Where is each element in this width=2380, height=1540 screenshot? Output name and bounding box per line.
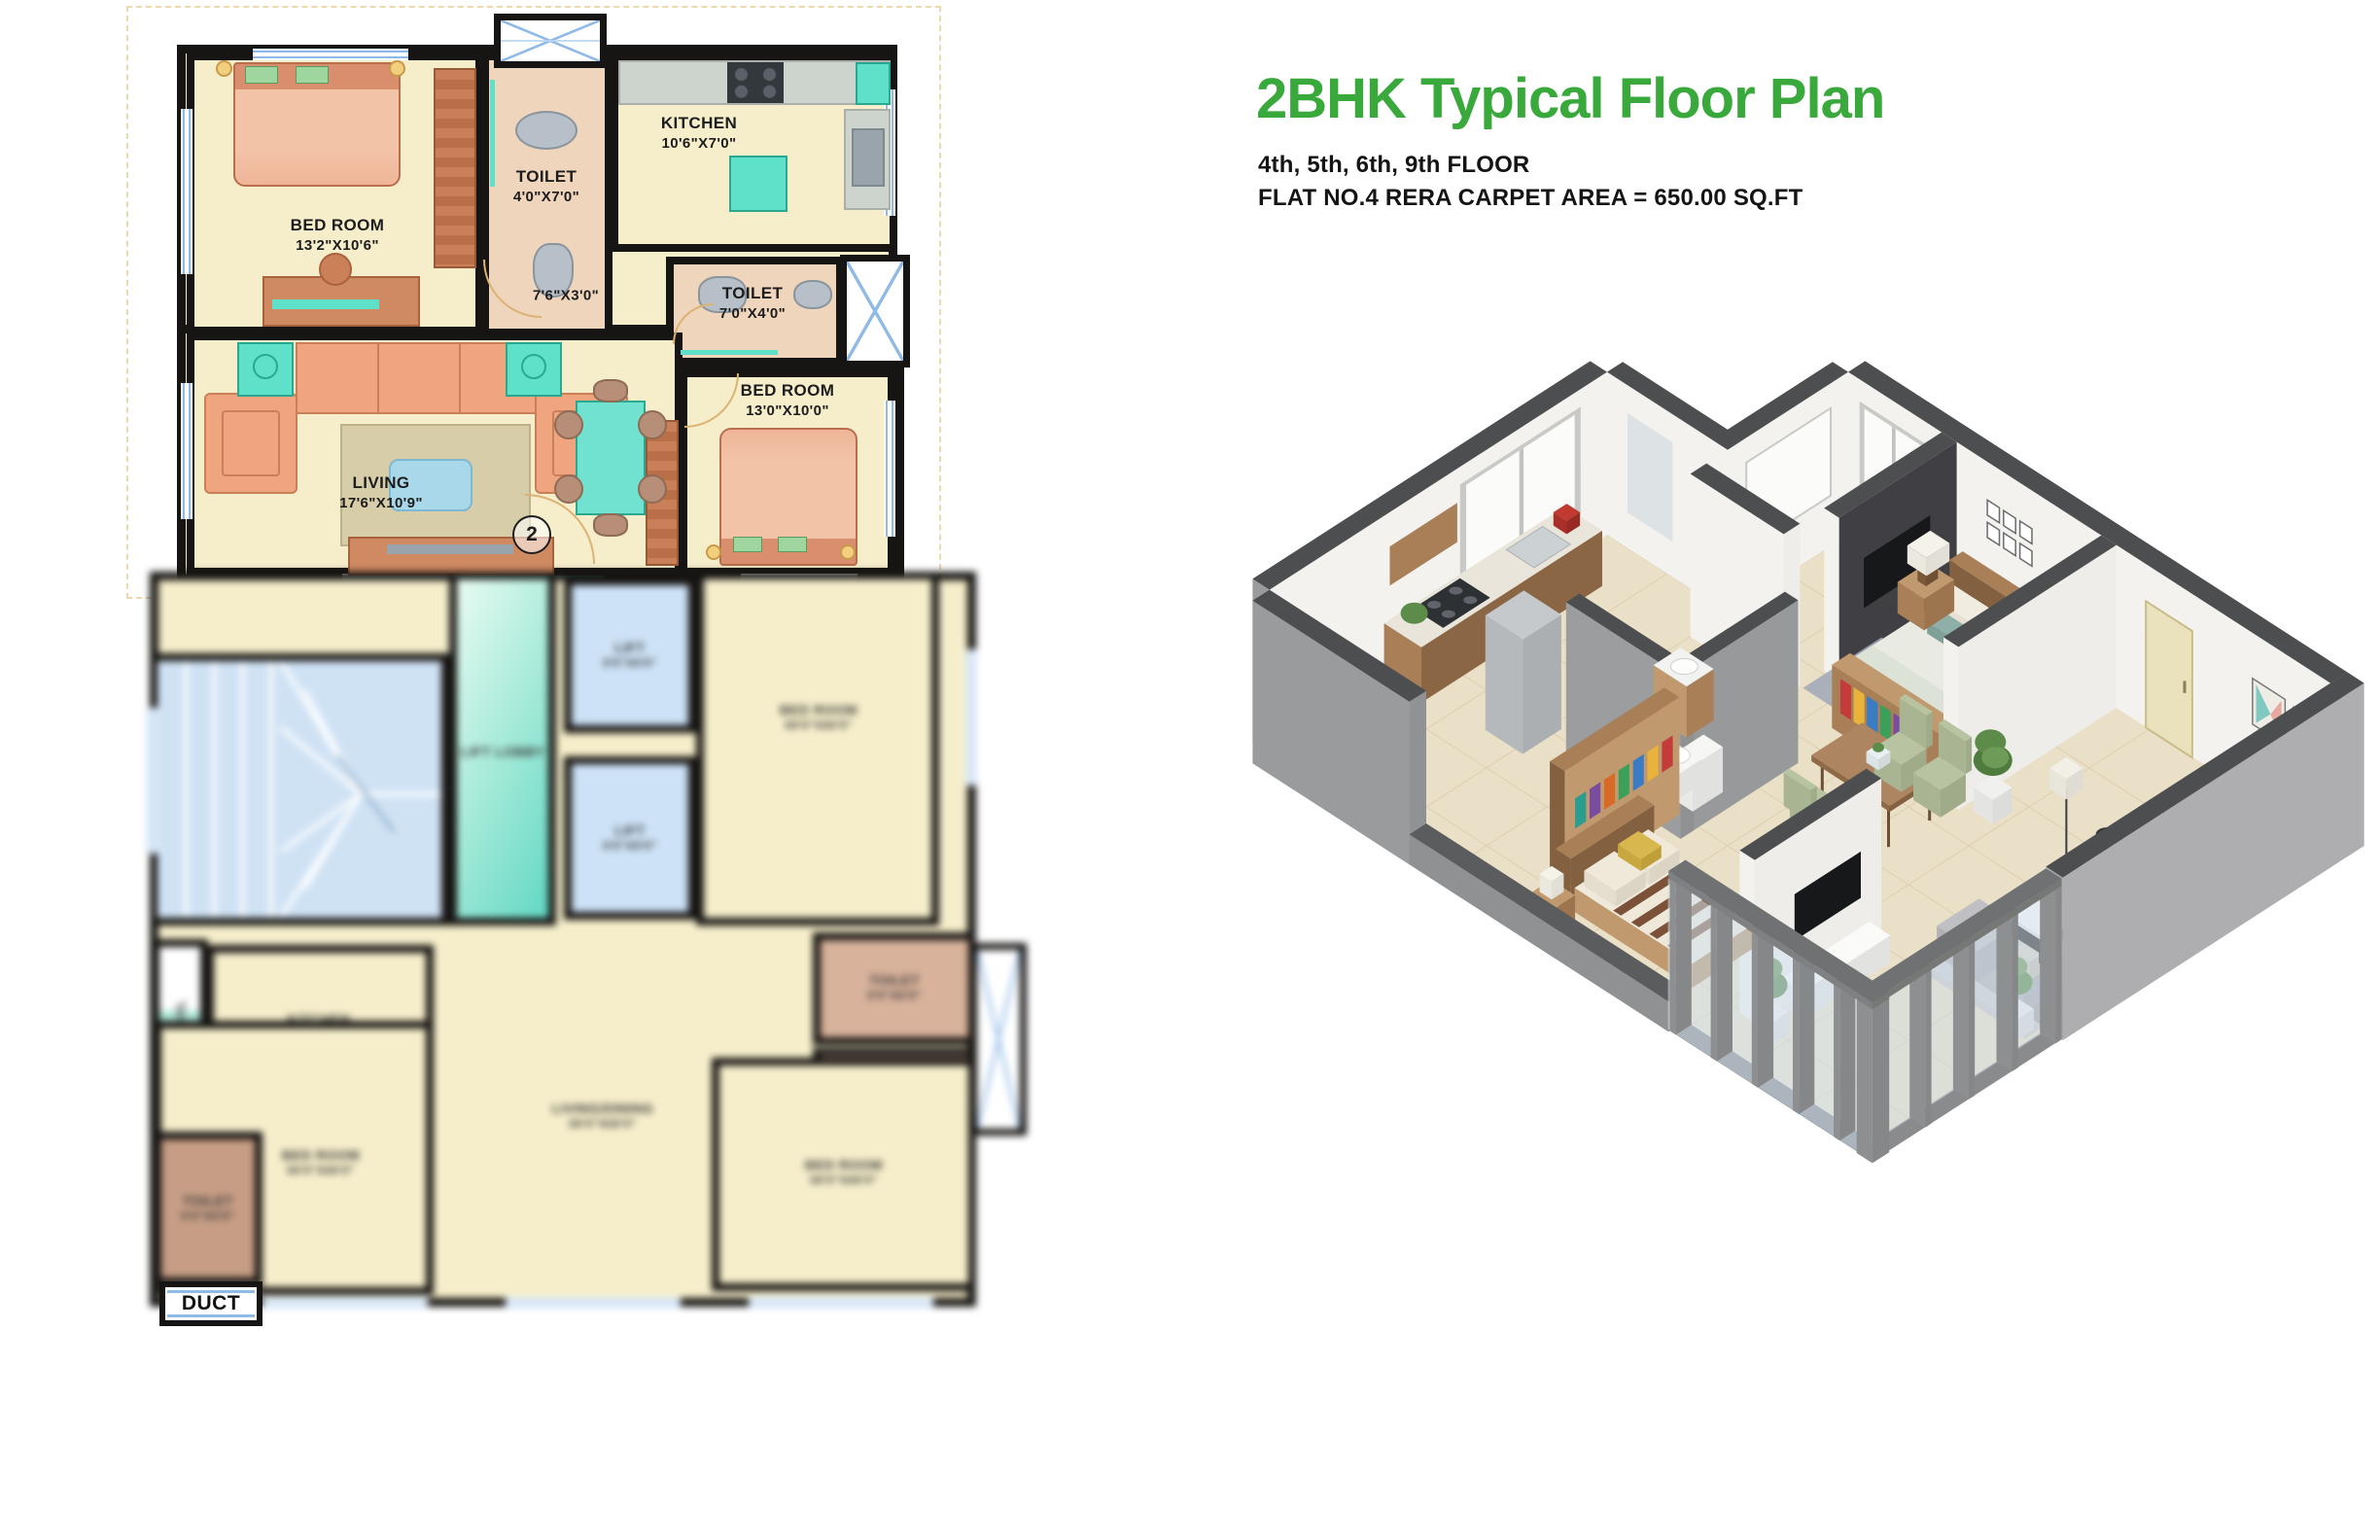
toilet-accent: [490, 80, 495, 187]
side-table-detail: [521, 354, 546, 379]
label-lower-bedroom-br: BED ROOM00'0"X00'0": [805, 1156, 883, 1189]
window: [181, 383, 192, 519]
lower-staircase: [150, 653, 449, 926]
label-bedroom-1: BED ROOM13'2"X10'6": [291, 215, 385, 256]
pillow-symbol: [778, 537, 807, 552]
x-hatch-icon: [501, 20, 600, 61]
toilet-accent: [681, 350, 778, 355]
label-bedroom-2: BED ROOM13'0"X10'0": [741, 380, 835, 421]
stove-symbol: [727, 62, 784, 103]
tv-screen: [387, 544, 513, 554]
lower-bedroom-tr: [696, 572, 939, 926]
armchair-cushion: [222, 410, 280, 476]
x-hatch-icon: [977, 950, 1020, 1129]
chair-symbol: [554, 474, 583, 504]
label-lower-living: LIVING/DINING00'0"X00'0": [552, 1100, 654, 1133]
duct-shaft-top: [494, 14, 607, 68]
washbasin-symbol: [793, 280, 832, 309]
floor-plan-page: 2BHK Typical Floor Plan 4th, 5th, 6th, 9…: [0, 0, 2380, 1540]
window: [262, 1297, 428, 1309]
window: [965, 649, 977, 786]
label-lift-lobby: LIFT LOBBY: [461, 743, 544, 760]
kitchen-appliance: [856, 62, 891, 105]
chair-symbol: [638, 474, 667, 504]
dresser-accent: [272, 299, 379, 309]
duct-shaft-right: [840, 255, 910, 367]
label-lower-bedroom-bl: BED ROOM00'0"X00'0": [282, 1146, 360, 1179]
window: [884, 401, 895, 537]
label-toilet-2: TOILET7'0"X4'0": [719, 283, 786, 324]
x-hatch-icon: [847, 262, 903, 361]
page-title: 2BHK Typical Floor Plan: [1256, 66, 1884, 131]
chair-symbol: [554, 410, 583, 439]
label-lift-1: LIFT0'0"X0'0": [603, 639, 656, 672]
floors-line: 4th, 5th, 6th, 9th FLOOR: [1258, 152, 1529, 179]
pillow-symbol: [245, 66, 278, 84]
stair-treads-icon: [157, 661, 441, 918]
pillow-symbol: [296, 66, 329, 84]
window: [146, 708, 157, 854]
label-kitchen: KITCHEN10'6"X7'0": [661, 113, 737, 154]
label-lift-2: LIFT0'0"X0'0": [603, 822, 656, 855]
lamp-symbol: [216, 60, 232, 77]
window: [749, 1297, 933, 1309]
label-lower-toilet-r1: TOILET0'0"X0'0": [867, 971, 921, 1004]
rera-area-line: FLAT NO.4 RERA CARPET AREA = 650.00 SQ.F…: [1258, 185, 1803, 212]
label-lower-bedroom-tr: BED ROOM00'0"X00'0": [780, 701, 857, 734]
window: [506, 1297, 681, 1309]
chair-symbol: [638, 410, 667, 439]
lower-floor-plan-blurred: LIFT LOBBY LIFT0'0"X0'0" LIFT0'0"X0'0" B…: [146, 572, 1040, 1349]
duct-label: DUCT: [182, 1292, 240, 1315]
side-table-detail: [253, 354, 278, 379]
duct-label-box: DUCT: [159, 1281, 262, 1326]
washbasin-symbol: [515, 111, 577, 150]
label-lower-toilet-bl: TOILET0'0"X0'0": [181, 1192, 234, 1225]
label-living: LIVING17'6"X10'9": [339, 472, 423, 513]
dining-table-symbol: [576, 401, 646, 515]
label-toilet-1: TOILET4'0"X7'0": [513, 166, 579, 207]
typical-floor-plan-2d: 2 BED ROOM13'2"X10'6" TOILET4'0"X7'0" KI…: [148, 12, 918, 595]
window: [181, 109, 192, 274]
refrigerator-symbol: [729, 156, 787, 212]
wardrobe-symbol: [434, 68, 476, 268]
lamp-symbol: [706, 544, 721, 560]
flat-number-badge: 2: [512, 515, 551, 554]
chair-symbol: [593, 379, 628, 402]
window: [253, 49, 408, 60]
lower-duct-shaft-right: [970, 943, 1027, 1136]
lamp-symbol: [840, 544, 856, 560]
pillow-symbol: [733, 537, 762, 552]
label-passage: 7'6"X3'0": [533, 286, 599, 305]
isometric-3d-render: [1217, 292, 2380, 1244]
lamp-symbol: [389, 60, 405, 77]
kitchen-sink: [852, 128, 885, 187]
stool-symbol: [319, 253, 352, 286]
blurred-plan-content: LIFT LOBBY LIFT0'0"X0'0" LIFT0'0"X0'0" B…: [146, 572, 1040, 1349]
chair-symbol: [593, 513, 628, 537]
